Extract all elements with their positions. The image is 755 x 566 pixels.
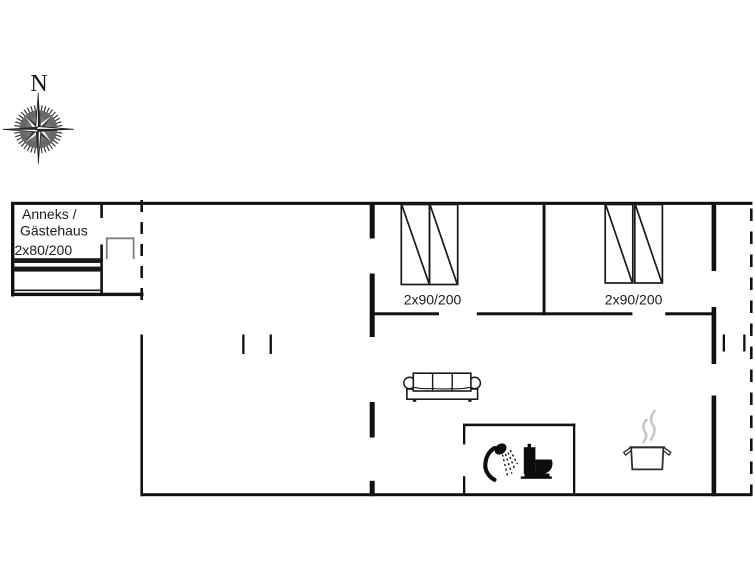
svg-text:Gästehaus: Gästehaus [20,223,88,239]
svg-text:Anneks /: Anneks / [22,206,77,222]
svg-text:2x90/200: 2x90/200 [605,291,663,307]
svg-text:N: N [30,71,47,97]
svg-text:2x80/200: 2x80/200 [15,242,73,258]
svg-text:2x90/200: 2x90/200 [404,291,462,307]
